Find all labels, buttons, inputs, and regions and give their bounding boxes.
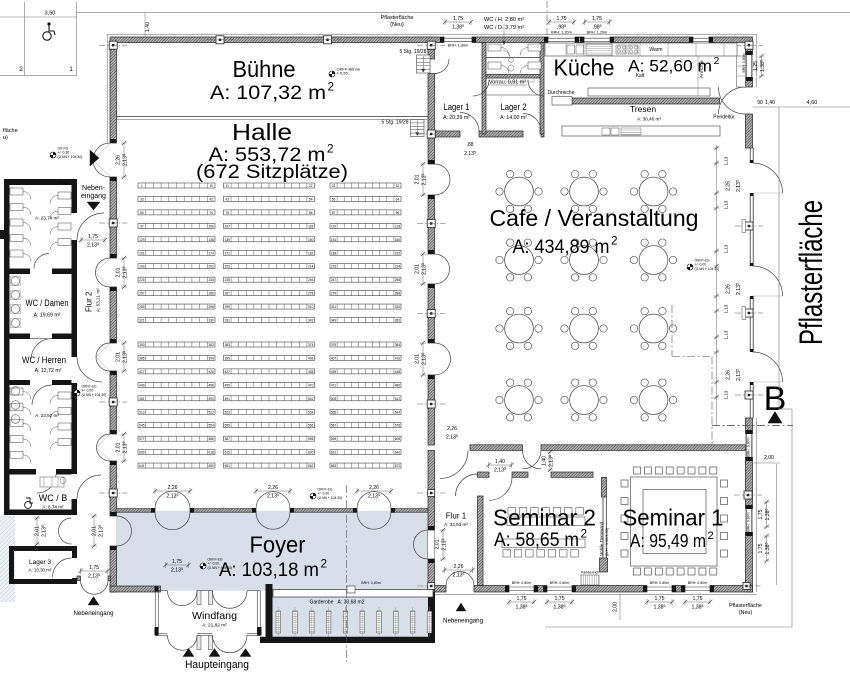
svg-text:+ 0,95: + 0,95 xyxy=(337,71,349,76)
svg-text:A: 8,74 m²: A: 8,74 m² xyxy=(42,505,64,510)
svg-text:A: 23,92 m²: A: 23,92 m² xyxy=(35,413,59,418)
svg-text:A: 20,39 m²: A: 20,39 m² xyxy=(443,115,470,121)
svg-text:65: 65 xyxy=(140,211,144,215)
svg-text:651: 651 xyxy=(225,464,231,468)
svg-text:352: 352 xyxy=(395,319,401,323)
svg-text:256: 256 xyxy=(395,278,401,282)
svg-text:235: 235 xyxy=(225,278,231,282)
svg-text:1,75: 1,75 xyxy=(89,565,99,571)
svg-text:eingang: eingang xyxy=(81,193,106,200)
svg-text:279: 279 xyxy=(331,292,337,296)
svg-text:576: 576 xyxy=(395,424,401,428)
svg-text:Nebeneingang: Nebeneingang xyxy=(443,618,483,625)
svg-text:503: 503 xyxy=(331,397,337,401)
svg-text:544: 544 xyxy=(395,410,401,414)
svg-text:(Ü.NN + 104,30): (Ü.NN + 104,30) xyxy=(695,267,720,271)
svg-text:641: 641 xyxy=(139,464,145,468)
svg-text:Lager 2: Lager 2 xyxy=(501,102,527,113)
svg-text:502: 502 xyxy=(308,397,314,401)
svg-text:WC / B: WC / B xyxy=(39,493,68,503)
svg-text:Seminar 1: Seminar 1 xyxy=(623,505,724,531)
svg-text:Nebeneingang: Nebeneingang xyxy=(74,610,114,617)
svg-text:Foyer: Foyer xyxy=(250,532,306,558)
svg-text:215: 215 xyxy=(331,265,337,269)
svg-text:299: 299 xyxy=(225,305,231,309)
svg-text:Pflasterfläche: Pflasterfläche xyxy=(381,15,414,21)
svg-text:A: 12,72 m²: A: 12,72 m² xyxy=(35,368,62,374)
svg-text:513: 513 xyxy=(139,410,145,414)
svg-text:A: 58,65 m: A: 58,65 m xyxy=(494,530,579,551)
svg-text:663: 663 xyxy=(331,464,337,468)
svg-text:2,01: 2,01 xyxy=(415,174,421,184)
svg-text:2: 2 xyxy=(321,557,328,570)
svg-text:151: 151 xyxy=(331,238,337,242)
svg-text:2,01: 2,01 xyxy=(92,526,98,536)
svg-text:97: 97 xyxy=(140,224,144,228)
svg-text:1,75: 1,75 xyxy=(88,234,98,240)
svg-text:470: 470 xyxy=(308,383,314,387)
svg-text:2: 2 xyxy=(327,142,334,155)
svg-text:(Ü.NN + 104,30): (Ü.NN + 104,30) xyxy=(318,496,343,500)
svg-text:512: 512 xyxy=(395,397,401,401)
svg-text:1,25: 1,25 xyxy=(753,61,759,71)
svg-text:1,40: 1,40 xyxy=(542,456,548,466)
svg-text:439: 439 xyxy=(331,370,337,374)
svg-text:289: 289 xyxy=(139,305,145,309)
svg-text:1: 1 xyxy=(141,184,143,188)
svg-text:138: 138 xyxy=(208,238,214,242)
svg-text:Windfang: Windfang xyxy=(192,610,237,622)
svg-text:96: 96 xyxy=(396,211,400,215)
svg-text:183: 183 xyxy=(331,251,337,255)
svg-text:182: 182 xyxy=(308,251,314,255)
svg-text:2: 2 xyxy=(328,80,335,93)
svg-text:1,40: 1,40 xyxy=(495,459,505,465)
svg-text:522: 522 xyxy=(208,410,214,414)
svg-text:1,75: 1,75 xyxy=(654,596,664,602)
svg-text:298: 298 xyxy=(208,305,214,309)
svg-text:353: 353 xyxy=(139,343,145,347)
svg-text:2,26: 2,26 xyxy=(447,426,457,432)
svg-text:1,75: 1,75 xyxy=(516,596,526,602)
svg-text:128: 128 xyxy=(395,224,401,228)
svg-text:55: 55 xyxy=(332,197,336,201)
svg-text:566: 566 xyxy=(308,424,314,428)
svg-text:(672 Sitzplätze): (672 Sitzplätze) xyxy=(196,162,348,183)
svg-text:BRH: 0,80m: BRH: 0,80m xyxy=(650,581,670,585)
svg-text:11: 11 xyxy=(226,184,230,188)
svg-text:1,75: 1,75 xyxy=(758,543,764,553)
svg-text:170: 170 xyxy=(208,251,214,255)
svg-text:Tresen: Tresen xyxy=(630,104,656,114)
svg-text:fläche: fläche xyxy=(3,128,18,134)
svg-text:427: 427 xyxy=(225,370,231,374)
svg-text:458: 458 xyxy=(208,383,214,387)
svg-text:Lager 3: Lager 3 xyxy=(29,559,51,566)
svg-text:2,26: 2,26 xyxy=(453,564,463,570)
svg-text:64: 64 xyxy=(396,197,400,201)
svg-text:650: 650 xyxy=(208,464,214,468)
svg-text:416: 416 xyxy=(395,356,401,360)
svg-text:A: 21,82 m²: A: 21,82 m² xyxy=(202,623,227,629)
svg-text:395: 395 xyxy=(225,356,231,360)
svg-text:Bühne: Bühne xyxy=(233,56,296,82)
svg-text:Neben-: Neben- xyxy=(82,185,106,192)
svg-text:554: 554 xyxy=(208,424,214,428)
svg-text:203: 203 xyxy=(225,265,231,269)
svg-text:22: 22 xyxy=(309,184,313,188)
svg-text:480: 480 xyxy=(395,383,401,387)
svg-text:BRH: 0,80m: BRH: 0,80m xyxy=(747,512,751,532)
svg-text:160: 160 xyxy=(395,238,401,242)
svg-text:330: 330 xyxy=(208,319,214,323)
svg-text:2,26: 2,26 xyxy=(726,181,732,191)
svg-text:Lager 1: Lager 1 xyxy=(444,102,470,113)
svg-text:10: 10 xyxy=(209,184,213,188)
svg-text:2: 2 xyxy=(19,66,23,73)
svg-text:119: 119 xyxy=(331,224,336,228)
svg-text:BRH: 1,20m: BRH: 1,20m xyxy=(551,31,572,35)
svg-text:267: 267 xyxy=(225,292,231,296)
svg-text:(B/H - 5,00/3,50): (B/H - 5,00/3,50) xyxy=(605,527,609,556)
svg-text:426: 426 xyxy=(208,370,214,374)
svg-text:2: 2 xyxy=(714,55,720,67)
svg-text:2,01: 2,01 xyxy=(116,267,122,277)
svg-text:WC / Herren: WC / Herren xyxy=(22,355,66,365)
svg-text:2: 2 xyxy=(611,234,618,247)
svg-text:1,13: 1,13 xyxy=(724,390,729,399)
svg-text:161: 161 xyxy=(139,251,145,255)
svg-text:129: 129 xyxy=(139,238,145,242)
svg-text:Pflasterfläche: Pflasterfläche xyxy=(729,603,762,609)
svg-text:599: 599 xyxy=(331,437,337,441)
svg-text:362: 362 xyxy=(208,343,214,347)
svg-text:406: 406 xyxy=(308,356,314,360)
svg-text:Durchreiche: Durchreiche xyxy=(548,90,575,96)
svg-text:2,00: 2,00 xyxy=(613,602,619,612)
svg-text:A: 53,21 m²: A: 53,21 m² xyxy=(96,288,101,312)
svg-text:4,60: 4,60 xyxy=(807,100,818,106)
svg-text:Warm: Warm xyxy=(649,47,662,53)
svg-text:640: 640 xyxy=(395,451,401,455)
svg-text:(Ü.NN + 104,30): (Ü.NN + 104,30) xyxy=(58,155,83,159)
svg-text:1,75: 1,75 xyxy=(172,559,182,565)
svg-text:384: 384 xyxy=(395,343,401,347)
svg-text:1,75: 1,75 xyxy=(556,16,566,22)
svg-text:106: 106 xyxy=(208,224,214,228)
svg-text:Garderobe A: 33,68 m2: Garderobe A: 33,68 m2 xyxy=(309,600,364,606)
svg-text:343: 343 xyxy=(331,319,337,323)
svg-text:1,75: 1,75 xyxy=(758,509,764,519)
svg-text:288: 288 xyxy=(395,292,401,296)
svg-text:577: 577 xyxy=(139,437,145,441)
svg-text:WC / H. 2,80 m²: WC / H. 2,80 m² xyxy=(484,17,524,23)
svg-text:BRH: 0,80m: BRH: 0,80m xyxy=(550,581,570,585)
svg-text:Vorrau. 0,91 m²: Vorrau. 0,91 m² xyxy=(489,80,526,86)
svg-text:618: 618 xyxy=(208,451,214,455)
svg-text:375: 375 xyxy=(331,343,337,347)
svg-text:2: 2 xyxy=(581,527,588,540)
svg-text:90: 90 xyxy=(757,100,763,106)
svg-text:A: 30,46 m³: A: 30,46 m³ xyxy=(637,117,661,122)
svg-text:331: 331 xyxy=(225,319,231,323)
svg-text:,88: ,88 xyxy=(467,142,474,148)
svg-text:662: 662 xyxy=(308,464,314,468)
svg-text:2: 2 xyxy=(708,530,714,542)
svg-text:A: 95,49 m: A: 95,49 m xyxy=(630,531,706,551)
svg-text:139: 139 xyxy=(225,238,231,242)
svg-text:2,26: 2,26 xyxy=(268,485,278,491)
svg-text:609: 609 xyxy=(139,451,145,455)
svg-text:171: 171 xyxy=(225,251,231,255)
svg-text:311: 311 xyxy=(331,305,336,309)
svg-text:u): u) xyxy=(3,135,8,141)
svg-text:150: 150 xyxy=(308,238,314,242)
svg-text:363: 363 xyxy=(225,343,231,347)
svg-text:471: 471 xyxy=(331,383,337,387)
svg-text:1,13: 1,13 xyxy=(724,330,729,339)
svg-text:490: 490 xyxy=(208,397,214,401)
svg-text:Flur 2: Flur 2 xyxy=(85,291,94,312)
svg-text:A: 23,74 m²: A: 23,74 m² xyxy=(35,216,59,221)
svg-text:619: 619 xyxy=(225,451,231,455)
svg-text:310: 310 xyxy=(308,305,314,309)
svg-text:BRH: 1,80m: BRH: 1,80m xyxy=(448,44,469,48)
svg-text:246: 246 xyxy=(308,278,314,282)
svg-text:42: 42 xyxy=(209,197,213,201)
svg-text:WC / Damen: WC / Damen xyxy=(26,298,69,308)
svg-text:1,75: 1,75 xyxy=(453,16,463,22)
svg-text:Parkbereich: Parkbereich xyxy=(581,571,599,575)
svg-text:75: 75 xyxy=(226,211,230,215)
svg-text:Flur 1: Flur 1 xyxy=(446,512,467,521)
svg-text:459: 459 xyxy=(225,383,231,387)
svg-text:2,00: 2,00 xyxy=(764,455,774,461)
svg-text:54: 54 xyxy=(309,197,313,201)
svg-text:630: 630 xyxy=(308,451,314,455)
svg-text:266: 266 xyxy=(208,292,214,296)
svg-text:598: 598 xyxy=(308,437,314,441)
svg-text:587: 587 xyxy=(225,437,231,441)
svg-text:320: 320 xyxy=(395,305,401,309)
svg-text:2,01: 2,01 xyxy=(415,354,421,364)
svg-text:BRH: 0,80m: BRH: 0,80m xyxy=(512,581,532,585)
svg-text:481: 481 xyxy=(139,397,145,401)
svg-text:107: 107 xyxy=(225,224,231,228)
svg-text:374: 374 xyxy=(308,343,314,347)
svg-text:247: 247 xyxy=(331,278,337,282)
svg-text:567: 567 xyxy=(331,424,337,428)
svg-text:A: 107,32 m: A: 107,32 m xyxy=(210,83,326,104)
svg-text:86: 86 xyxy=(309,211,313,215)
svg-text:(Ü.NN + 104,30): (Ü.NN + 104,30) xyxy=(82,393,107,397)
svg-text:545: 545 xyxy=(139,424,145,428)
svg-text:(Ü.NN + 104,30): (Ü.NN + 104,30) xyxy=(208,566,233,570)
svg-text:Cafe / Veranstaltung: Cafe / Veranstaltung xyxy=(490,205,699,231)
svg-text:202: 202 xyxy=(208,265,214,269)
svg-text:257: 257 xyxy=(139,292,145,296)
svg-text:(Neu): (Neu) xyxy=(739,610,753,616)
svg-text:A: 52,60 m: A: 52,60 m xyxy=(628,57,712,76)
svg-text:631: 631 xyxy=(331,451,337,455)
svg-text:192: 192 xyxy=(395,251,401,255)
svg-text:43: 43 xyxy=(226,197,230,201)
svg-text:394: 394 xyxy=(208,356,214,360)
svg-text:Pendeltür: Pendeltür xyxy=(713,115,735,121)
svg-text:417: 417 xyxy=(139,370,145,374)
svg-text:586: 586 xyxy=(208,437,214,441)
svg-text:407: 407 xyxy=(331,356,337,360)
svg-text:555: 555 xyxy=(225,424,231,428)
svg-text:214: 214 xyxy=(308,265,314,269)
svg-text:5 Stg. 19/28: 5 Stg. 19/28 xyxy=(400,49,427,55)
svg-text:Halle: Halle xyxy=(232,119,292,145)
svg-text:2,01: 2,01 xyxy=(35,526,41,536)
svg-text:5 Stg. 19/28: 5 Stg. 19/28 xyxy=(382,120,409,126)
svg-text:1,75: 1,75 xyxy=(692,596,702,602)
svg-text:2,26: 2,26 xyxy=(116,155,122,165)
svg-text:BRH: 1,20m: BRH: 1,20m xyxy=(587,31,608,35)
svg-text:2,26: 2,26 xyxy=(369,485,379,491)
svg-text:Mobile Trennwand: Mobile Trennwand xyxy=(599,521,604,556)
svg-text:438: 438 xyxy=(308,370,314,374)
svg-text:(Neu): (Neu) xyxy=(390,22,404,28)
svg-text:535: 535 xyxy=(331,410,337,414)
svg-text:A: 34,93 m²: A: 34,93 m² xyxy=(444,522,468,527)
svg-text:2,01: 2,01 xyxy=(116,442,122,452)
svg-text:BRH: 0,80m: BRH: 0,80m xyxy=(747,437,751,457)
svg-text:3,50: 3,50 xyxy=(45,11,56,17)
svg-text:A: 103,18 m: A: 103,18 m xyxy=(219,560,319,581)
svg-text:1,75: 1,75 xyxy=(592,16,602,22)
svg-text:449: 449 xyxy=(139,383,145,387)
svg-text:74: 74 xyxy=(209,211,213,215)
svg-text:448: 448 xyxy=(395,370,401,374)
svg-text:PuMi: PuMi xyxy=(59,181,68,186)
svg-text:A: 434,89 m: A: 434,89 m xyxy=(513,237,610,258)
svg-text:1,13: 1,13 xyxy=(724,156,729,165)
svg-text:1,75: 1,75 xyxy=(554,596,564,602)
svg-text:Küche: Küche xyxy=(554,55,615,81)
svg-text:87: 87 xyxy=(332,211,336,215)
svg-text:32: 32 xyxy=(396,184,400,188)
svg-text:BRH: 0,80m: BRH: 0,80m xyxy=(742,53,746,72)
svg-text:Pflasterfläche: Pflasterfläche xyxy=(793,200,829,345)
svg-text:672: 672 xyxy=(395,464,401,468)
svg-text:491: 491 xyxy=(225,397,231,401)
svg-text:342: 342 xyxy=(308,319,314,323)
svg-text:Haupteingang: Haupteingang xyxy=(185,659,249,671)
svg-text:225: 225 xyxy=(139,278,145,282)
svg-text:23: 23 xyxy=(332,184,336,188)
svg-text:A: 14,00 m²: A: 14,00 m² xyxy=(500,115,527,121)
svg-text:1: 1 xyxy=(69,66,73,73)
svg-text:534: 534 xyxy=(308,410,314,414)
svg-text:BRH: 0,80m: BRH: 0,80m xyxy=(688,581,708,585)
svg-text:523: 523 xyxy=(225,410,231,414)
svg-text:278: 278 xyxy=(308,292,314,296)
svg-text:193: 193 xyxy=(139,265,145,269)
svg-text:118: 118 xyxy=(308,224,313,228)
svg-text:A: 19,69 m²: A: 19,69 m² xyxy=(34,313,61,319)
svg-text:1,40: 1,40 xyxy=(765,100,775,106)
svg-text:BRH: 0,80m: BRH: 0,80m xyxy=(361,581,381,585)
svg-text:1,40: 1,40 xyxy=(145,22,151,32)
svg-text:2,01: 2,01 xyxy=(415,264,421,274)
svg-text:1,13: 1,13 xyxy=(724,304,729,313)
svg-text:385: 385 xyxy=(139,356,145,360)
svg-text:33: 33 xyxy=(140,197,144,201)
svg-text:2,26: 2,26 xyxy=(167,485,177,491)
svg-text:224: 224 xyxy=(395,265,401,269)
svg-text:A: 10,30 m²: A: 10,30 m² xyxy=(29,568,52,573)
svg-text:608: 608 xyxy=(395,437,401,441)
svg-text:1,13: 1,13 xyxy=(724,200,729,209)
svg-text:2,26: 2,26 xyxy=(726,284,732,294)
svg-text:1,13: 1,13 xyxy=(724,244,729,253)
svg-text:234: 234 xyxy=(208,278,214,282)
svg-text:2,01: 2,01 xyxy=(116,352,122,362)
svg-text:2,26: 2,26 xyxy=(726,370,732,380)
svg-text:2,01: 2,01 xyxy=(435,539,441,549)
svg-text:321: 321 xyxy=(139,319,145,323)
